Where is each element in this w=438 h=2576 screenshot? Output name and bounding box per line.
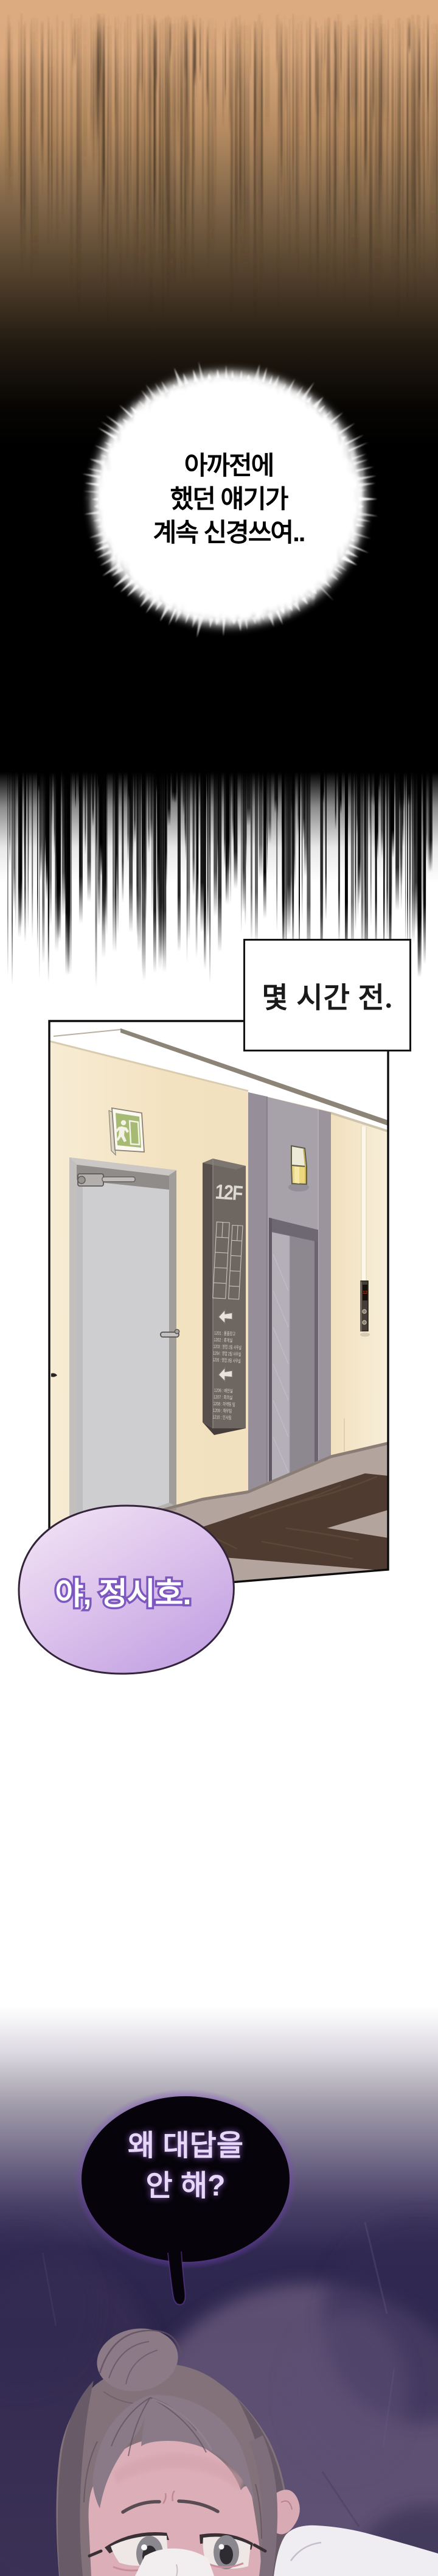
svg-text:1206 : 배전실: 1206 : 배전실 — [214, 1387, 233, 1394]
svg-text:1202 : 휴게실: 1202 : 휴게실 — [214, 1336, 232, 1344]
svg-text:1201 : 물품창고: 1201 : 물품창고 — [214, 1330, 235, 1337]
svg-text:야, 정시호.: 야, 정시호. — [55, 1576, 190, 1611]
svg-text:12F: 12F — [214, 1181, 243, 1206]
svg-text:12: 12 — [363, 1291, 367, 1295]
svg-text:1210 : 인사팀: 1210 : 인사팀 — [212, 1414, 231, 1421]
svg-text:1209 : 재무팀: 1209 : 재무팀 — [213, 1407, 232, 1414]
svg-text:1208 : 마케팅 팀: 1208 : 마케팅 팀 — [213, 1400, 235, 1408]
svg-text:1207 : 회의실: 1207 : 회의실 — [214, 1394, 232, 1401]
